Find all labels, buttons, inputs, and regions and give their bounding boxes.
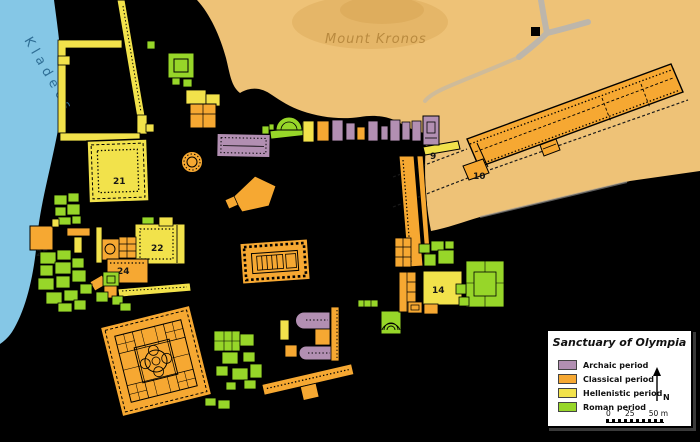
scale-bar: 0 25 50 m xyxy=(606,409,668,423)
heroon-square xyxy=(147,41,194,87)
roman-fountain xyxy=(358,300,401,334)
legend-item-classical: Classical period xyxy=(558,372,662,386)
west-wall xyxy=(117,0,145,118)
label-building-10: 10 xyxy=(473,172,486,182)
leonidaion xyxy=(100,305,212,417)
heraion-temple xyxy=(87,139,149,203)
roman-central-cluster xyxy=(205,331,262,409)
legend-items: Archaic period Classical period Hellenis… xyxy=(558,358,662,414)
scale-line xyxy=(606,419,664,423)
archaic-swatch xyxy=(558,360,577,370)
legend-box: Sanctuary of Olympia Archaic period Clas… xyxy=(546,329,693,428)
precinct-walls xyxy=(58,0,154,141)
legend-item-hellenistic: Hellenistic period xyxy=(558,386,662,400)
scale-tick-50: 50 m xyxy=(649,409,668,418)
road-marker xyxy=(531,27,540,36)
archaic-stoa xyxy=(217,134,270,158)
south-stoa xyxy=(262,364,357,409)
legend-title: Sanctuary of Olympia xyxy=(548,336,691,349)
north-label: N xyxy=(663,393,670,402)
hill-label: Mount Kronos xyxy=(325,32,427,47)
scale-tick-25: 25 xyxy=(625,409,635,418)
label-building-9: 9 xyxy=(430,152,436,162)
classical-swatch xyxy=(558,374,577,384)
scale-numbers: 0 25 50 m xyxy=(606,409,668,418)
olympia-site-map: Kladeos Mount Kronos 9 10 xyxy=(0,0,700,442)
philippeion xyxy=(182,152,203,173)
treasury-large xyxy=(423,116,439,145)
roman-swatch xyxy=(558,402,577,412)
label-building-22: 22 xyxy=(151,244,164,254)
hellenistic-swatch xyxy=(558,388,577,398)
label-building-21: 21 xyxy=(113,177,126,187)
temple-of-zeus xyxy=(240,239,311,285)
prytaneion-cluster xyxy=(186,90,220,128)
north-arrow: N xyxy=(651,367,671,411)
bouleuterion xyxy=(280,307,339,361)
label-building-14: 14 xyxy=(432,286,445,296)
pelopion xyxy=(225,176,276,212)
scale-tick-0: 0 xyxy=(606,409,611,418)
legend-item-archaic: Archaic period xyxy=(558,358,662,372)
